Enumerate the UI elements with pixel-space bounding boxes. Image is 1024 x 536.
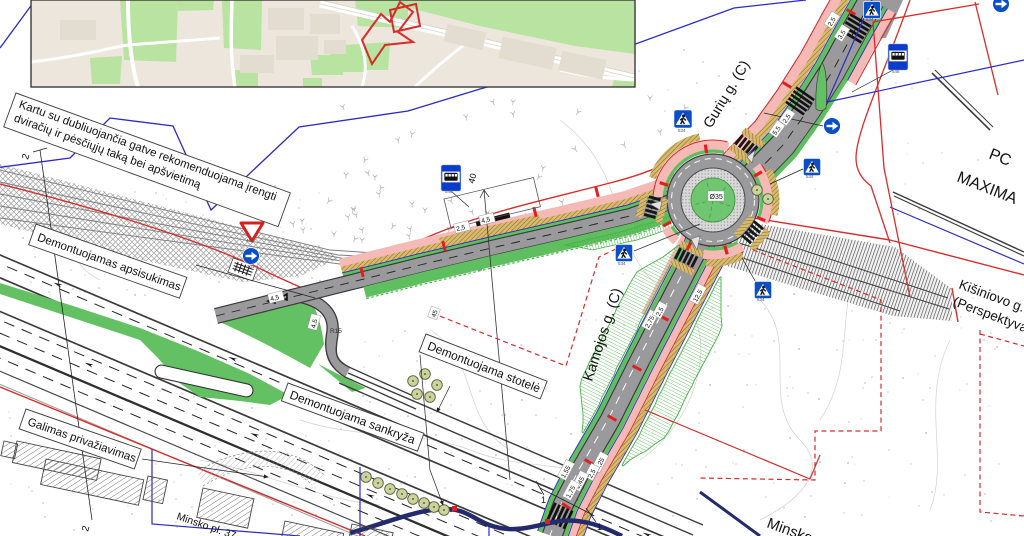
svg-text:Ø35: Ø35: [709, 194, 722, 201]
svg-text:534: 534: [678, 128, 686, 133]
svg-text:1: 1: [597, 522, 602, 532]
svg-text:546: 546: [892, 69, 900, 74]
svg-text:1: 1: [541, 495, 546, 505]
svg-text:534: 534: [866, 17, 874, 22]
svg-text:401: 401: [246, 238, 254, 243]
svg-text:534: 534: [806, 174, 814, 179]
svg-text:201: 201: [247, 264, 255, 269]
svg-text:534: 534: [757, 297, 765, 302]
svg-text:546: 546: [445, 189, 453, 194]
svg-text:534: 534: [618, 261, 626, 266]
svg-text:R15: R15: [330, 328, 342, 335]
